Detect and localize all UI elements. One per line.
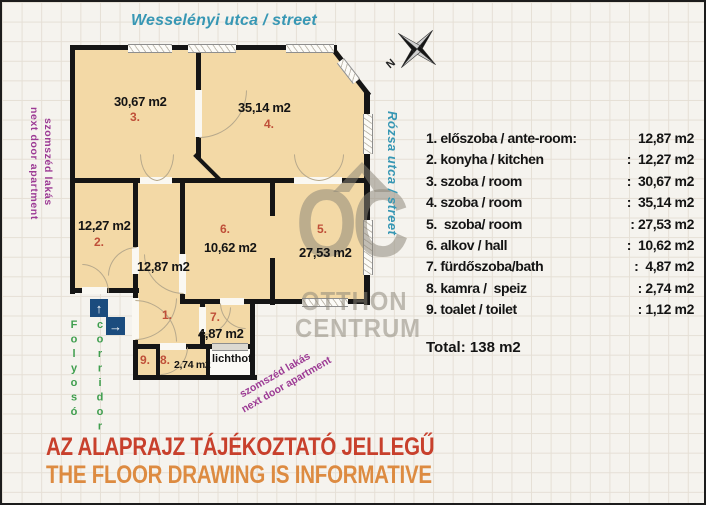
legend-value: : 27,53 m2: [630, 216, 694, 237]
wall: [270, 178, 275, 216]
window: [188, 44, 236, 53]
legend-label: 3. szoba / room: [426, 173, 522, 194]
legend-value: : 10,62 m2: [627, 237, 694, 258]
legend-value: : 30,67 m2: [627, 173, 694, 194]
floor-plan-page: Wesselényi utca / street N: [0, 0, 706, 505]
room8-area: 2,74 m2: [174, 359, 210, 371]
legend-row: 7. fürdőszoba/bath: 4,87 m2: [426, 258, 694, 279]
room2-number: 2.: [94, 235, 104, 249]
room5-number: 5.: [317, 222, 327, 236]
legend-label: 5. szoba/ room: [426, 216, 522, 237]
wall: [133, 375, 257, 380]
wall: [250, 299, 255, 380]
lichthof-window: [212, 343, 248, 351]
disclaimer-english: THE FLOOR DRAWING IS INFORMATIVE: [46, 461, 432, 490]
disclaimer-hungarian: AZ ALAPRAJZ TÁJÉKOZTATÓ JELLEGŰ: [46, 433, 434, 462]
legend-value: : 35,14 m2: [627, 194, 694, 215]
legend-label: 6. alkov / hall: [426, 237, 507, 258]
legend-row: 4. szoba / room: 35,14 m2: [426, 194, 694, 215]
legend-value: 12,87 m2: [638, 130, 694, 151]
entry-up-arrow-icon: ↑: [90, 299, 108, 317]
room5-area: 27,53 m2: [299, 245, 352, 260]
watermark-centrum: CENTRUM: [295, 313, 421, 344]
street-label-top: Wesselényi utca / street: [131, 12, 317, 30]
room-legend: 1. előszoba / ante-room:12,87 m2 2. kony…: [426, 130, 694, 323]
neighbor-left-label-hu: szomszéd lakás: [42, 118, 54, 206]
legend-value: : 1,12 m2: [638, 301, 694, 322]
legend-value: : 4,87 m2: [634, 258, 694, 279]
room8-number: 8.: [160, 353, 170, 367]
room4-number: 4.: [264, 117, 274, 131]
window: [363, 114, 373, 154]
legend-row: 9. toalet / toilet: 1,12 m2: [426, 301, 694, 322]
legend-value: : 12,27 m2: [627, 151, 694, 172]
corridor-label-hu: Folyosó: [68, 319, 80, 421]
room6-number: 6.: [220, 222, 230, 236]
room7-area: 4,87 m2: [198, 326, 244, 341]
room1-area: 12,87 m2: [137, 259, 190, 274]
room7-number: 7.: [210, 310, 220, 324]
room4-area: 35,14 m2: [238, 100, 291, 115]
window: [286, 44, 334, 53]
legend-total: Total: 138 m2: [426, 339, 521, 356]
legend-row: 2. konyha / kitchen: 12,27 m2: [426, 151, 694, 172]
lichthof-label: lichthof: [212, 353, 252, 365]
room2-area: 12,27 m2: [78, 218, 131, 233]
wall: [270, 258, 275, 305]
legend-value: : 2,74 m2: [638, 280, 694, 301]
legend-label: 7. fürdőszoba/bath: [426, 258, 543, 279]
compass-rose-icon: [390, 22, 444, 76]
legend-row: 1. előszoba / ante-room:12,87 m2: [426, 130, 694, 151]
legend-row: 6. alkov / hall: 10,62 m2: [426, 237, 694, 258]
legend-label: 4. szoba / room: [426, 194, 522, 215]
legend-label: 1. előszoba / ante-room:: [426, 130, 577, 151]
legend-label: 9. toalet / toilet: [426, 301, 517, 322]
legend-row: 8. kamra / speiz: 2,74 m2: [426, 280, 694, 301]
entry-right-arrow-icon: →: [106, 317, 125, 335]
room1-number: 1.: [162, 308, 172, 322]
room6-area: 10,62 m2: [204, 240, 257, 255]
legend-label: 8. kamra / speiz: [426, 280, 527, 301]
neighbor-left-label-en: next door apartment: [28, 107, 40, 220]
room9-number: 9.: [140, 353, 150, 367]
wall: [70, 45, 75, 294]
legend-row: 3. szoba / room: 30,67 m2: [426, 173, 694, 194]
room3-area: 30,67 m2: [114, 94, 167, 109]
window: [128, 44, 172, 53]
legend-row: 5. szoba/ room: 27,53 m2: [426, 216, 694, 237]
room3-number: 3.: [130, 110, 140, 124]
street-label-right: Rózsa utca / street: [385, 111, 400, 235]
legend-label: 2. konyha / kitchen: [426, 151, 544, 172]
corridor-label-en: corridor: [94, 319, 106, 435]
